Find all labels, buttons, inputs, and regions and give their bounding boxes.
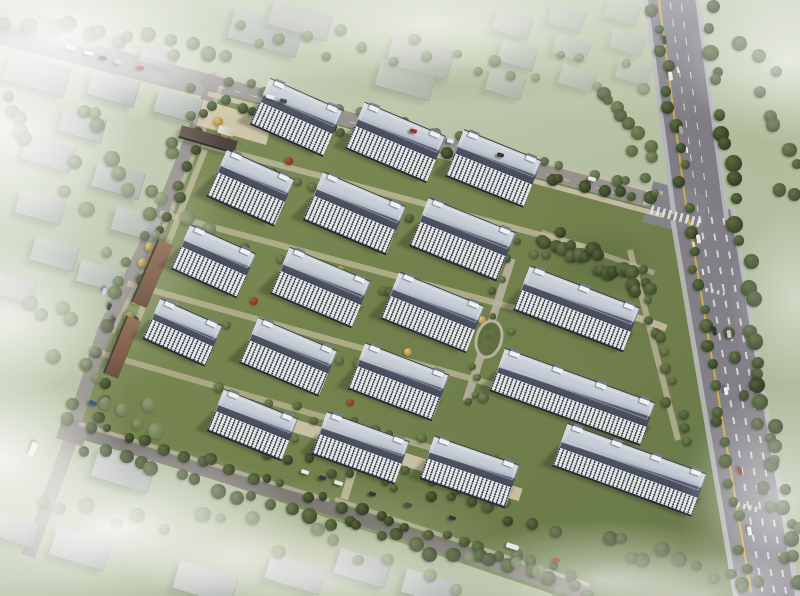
tree-icon	[120, 450, 133, 463]
tree-icon	[356, 503, 368, 515]
tree-icon	[704, 23, 715, 34]
tree-icon	[709, 573, 720, 584]
tree-icon	[325, 519, 337, 531]
tree-icon	[644, 316, 653, 325]
tree-icon	[446, 548, 460, 562]
tree-icon	[54, 503, 66, 515]
tree-icon	[680, 423, 690, 433]
tree-icon	[222, 321, 230, 329]
context-building	[558, 63, 598, 93]
tree-icon	[199, 109, 208, 118]
tree-icon	[173, 181, 183, 191]
tree-icon	[693, 279, 705, 291]
tree-icon	[384, 516, 394, 526]
vehicle	[711, 326, 716, 336]
tree-icon	[90, 118, 105, 133]
tree-icon	[247, 79, 256, 88]
tree-icon	[786, 550, 799, 563]
tree-icon	[753, 576, 764, 587]
tree-icon	[714, 109, 725, 120]
tree-icon	[165, 34, 177, 46]
context-building	[29, 236, 79, 272]
tree-icon	[159, 524, 170, 535]
tree-icon	[61, 16, 77, 32]
tree-icon	[68, 155, 82, 169]
tree-icon	[336, 357, 343, 364]
tree-icon	[336, 502, 348, 514]
tree-icon	[627, 192, 636, 201]
tree-icon	[80, 358, 92, 370]
tree-icon	[661, 348, 669, 356]
tree-icon	[768, 419, 783, 434]
tree-icon	[554, 174, 563, 183]
tree-icon	[459, 537, 470, 548]
tree-icon	[768, 439, 782, 453]
tree-icon	[143, 461, 159, 477]
tree-icon	[151, 230, 161, 240]
tree-icon	[335, 24, 348, 37]
tree-icon	[189, 473, 201, 485]
tree-icon	[752, 49, 766, 63]
tree-icon	[635, 553, 650, 568]
tree-icon	[422, 547, 437, 562]
tree-icon	[187, 37, 200, 50]
vehicle	[667, 71, 672, 80]
context-building	[333, 548, 392, 589]
tree-icon	[79, 202, 94, 217]
tree-icon	[508, 328, 515, 335]
tree-icon	[719, 454, 733, 468]
tree-icon	[148, 423, 164, 439]
tree-icon	[158, 444, 170, 456]
tree-icon	[283, 455, 293, 465]
tree-icon	[766, 117, 781, 132]
tree-icon	[102, 247, 113, 258]
tree-icon	[182, 161, 193, 172]
tree-icon	[319, 492, 328, 501]
vehicle	[28, 441, 38, 456]
tree-icon	[322, 52, 331, 61]
tree-icon	[178, 451, 190, 463]
tree-icon	[423, 530, 433, 540]
tree-icon	[404, 348, 412, 356]
tree-icon	[599, 185, 611, 197]
tree-icon	[426, 491, 437, 502]
tree-icon	[744, 254, 759, 269]
tree-icon	[451, 584, 462, 595]
tree-icon	[122, 183, 135, 196]
tree-icon	[205, 453, 217, 465]
tree-icon	[417, 433, 427, 443]
tree-icon	[592, 249, 604, 261]
tree-icon	[773, 183, 787, 197]
tree-icon	[246, 511, 260, 525]
tree-icon	[168, 49, 180, 61]
tree-icon	[644, 283, 656, 295]
tree-icon	[530, 250, 539, 259]
tree-icon	[539, 237, 551, 249]
tree-icon	[532, 564, 547, 579]
tree-icon	[726, 216, 743, 233]
tree-icon	[726, 569, 736, 579]
tree-icon	[542, 251, 550, 259]
tree-icon	[782, 143, 796, 157]
tree-icon	[273, 33, 285, 45]
tree-icon	[511, 557, 522, 568]
tree-icon	[654, 45, 666, 57]
tree-icon	[725, 155, 742, 172]
tree-icon	[655, 25, 664, 34]
tree-icon	[570, 580, 581, 591]
tree-icon	[465, 398, 471, 404]
tree-icon	[622, 59, 631, 68]
tree-icon	[555, 227, 566, 238]
tree-icon	[302, 31, 313, 42]
context-building	[552, 33, 592, 63]
tree-icon	[532, 73, 541, 82]
tree-icon	[180, 210, 195, 225]
vehicle	[746, 526, 752, 536]
tree-icon	[626, 145, 638, 157]
tree-icon	[631, 285, 639, 293]
tree-icon	[731, 193, 742, 204]
tree-icon	[377, 531, 388, 542]
context-building	[496, 39, 538, 72]
tree-icon	[720, 437, 730, 447]
tree-icon	[746, 291, 762, 307]
tree-icon	[788, 188, 800, 201]
tree-icon	[739, 390, 749, 400]
context-building	[609, 28, 647, 58]
tree-icon	[489, 55, 501, 67]
tree-icon	[663, 60, 675, 72]
tree-icon	[557, 51, 566, 60]
tree-icon	[638, 83, 650, 95]
tree-icon	[37, 496, 49, 508]
tree-icon	[422, 51, 432, 61]
context-building	[547, 3, 587, 33]
tree-icon	[729, 351, 742, 364]
tree-icon	[640, 173, 651, 184]
tree-icon	[66, 398, 79, 411]
tree-icon	[776, 500, 790, 514]
tree-icon	[214, 117, 223, 126]
tree-icon	[186, 111, 196, 121]
tree-icon	[46, 349, 61, 364]
tree-icon	[174, 192, 186, 204]
tree-icon	[751, 368, 763, 380]
context-building	[491, 8, 533, 41]
tree-icon	[454, 50, 462, 58]
tree-icon	[769, 455, 779, 465]
tree-icon	[757, 481, 771, 495]
tree-icon	[211, 484, 226, 499]
tree-icon	[792, 159, 800, 169]
tree-icon	[122, 31, 133, 42]
tree-icon	[250, 297, 258, 305]
tree-icon	[555, 161, 564, 170]
tree-icon	[129, 508, 145, 524]
tree-icon	[625, 265, 638, 278]
tree-icon	[35, 308, 48, 321]
tree-icon	[89, 346, 100, 357]
tree-icon	[353, 555, 363, 565]
tree-icon	[443, 531, 452, 540]
tree-icon	[139, 435, 151, 447]
tree-icon	[285, 157, 293, 165]
tree-icon	[718, 137, 731, 150]
vehicle	[695, 234, 700, 244]
tree-icon	[177, 469, 189, 481]
tree-icon	[734, 235, 745, 246]
tree-icon	[79, 446, 89, 456]
tree-icon	[112, 166, 127, 181]
tree-icon	[631, 126, 645, 140]
tree-icon	[220, 50, 232, 62]
tree-icon	[328, 534, 339, 545]
tree-icon	[737, 583, 748, 594]
tree-icon	[143, 207, 157, 221]
tree-icon	[23, 296, 38, 311]
tree-icon	[79, 497, 95, 513]
tree-icon	[683, 437, 692, 446]
tree-icon	[302, 508, 318, 524]
tree-icon	[142, 398, 155, 411]
tree-icon	[409, 34, 421, 46]
tree-icon	[661, 86, 671, 96]
tree-icon	[780, 484, 791, 495]
tree-icon	[707, 0, 720, 13]
vehicle	[679, 126, 684, 134]
tree-icon	[223, 464, 234, 475]
tree-icon	[162, 212, 172, 222]
tree-icon	[230, 491, 245, 506]
tree-icon	[141, 27, 156, 42]
tree-icon	[311, 523, 324, 536]
tree-icon	[390, 528, 403, 541]
tree-icon	[482, 553, 495, 566]
tree-icon	[116, 403, 128, 415]
tree-icon	[382, 554, 394, 566]
tree-icon	[111, 518, 122, 529]
tree-icon	[660, 363, 670, 373]
tree-icon	[263, 474, 271, 482]
tree-icon	[503, 516, 512, 525]
tree-icon	[672, 552, 687, 567]
tree-icon	[747, 333, 763, 349]
tree-icon	[615, 186, 626, 197]
tree-icon	[357, 42, 368, 53]
tree-icon	[0, 17, 11, 30]
tree-icon	[754, 86, 766, 98]
tree-icon	[64, 312, 78, 326]
tree-icon	[771, 66, 782, 77]
tree-icon	[292, 435, 300, 443]
tree-icon	[702, 45, 719, 62]
tree-icon	[727, 171, 742, 186]
tree-icon	[58, 185, 70, 197]
tree-icon	[424, 569, 437, 582]
context-building	[604, 0, 642, 27]
vehicle	[661, 35, 666, 44]
tree-icon	[140, 231, 150, 241]
tree-icon	[246, 491, 256, 501]
tree-icon	[646, 151, 658, 163]
tree-icon	[294, 178, 301, 185]
tree-icon	[550, 526, 562, 538]
tree-icon	[347, 399, 354, 406]
tree-icon	[651, 189, 659, 197]
tree-icon	[108, 286, 121, 299]
context-building	[264, 553, 326, 595]
tree-icon	[121, 257, 131, 267]
tree-icon	[553, 586, 566, 596]
tree-icon	[765, 501, 777, 513]
tree-icon	[729, 497, 738, 506]
tree-icon	[265, 499, 276, 510]
tree-icon	[22, 18, 37, 33]
tree-icon	[723, 479, 733, 489]
tree-icon	[710, 74, 721, 85]
tree-icon	[676, 143, 686, 153]
tree-icon	[276, 479, 284, 487]
tree-icon	[104, 151, 120, 167]
tree-icon	[616, 533, 627, 544]
tree-icon	[711, 416, 722, 427]
tree-icon	[4, 91, 14, 101]
tree-icon	[201, 46, 217, 62]
context-building	[49, 525, 113, 571]
tree-icon	[474, 67, 483, 76]
tree-icon	[711, 380, 721, 390]
tree-icon	[293, 402, 302, 411]
tree-icon	[286, 503, 299, 516]
tree-icon	[17, 131, 32, 146]
tree-icon	[791, 575, 800, 590]
tree-icon	[389, 57, 399, 67]
tree-icon	[86, 422, 98, 434]
tree-icon	[155, 192, 168, 205]
tree-icon	[216, 513, 226, 523]
aerial-site-render	[0, 0, 800, 596]
tree-icon	[690, 247, 699, 256]
tree-icon	[701, 340, 713, 352]
tree-icon	[732, 36, 747, 51]
context-building	[172, 561, 239, 596]
tree-icon	[195, 507, 211, 523]
tree-icon	[751, 418, 763, 430]
tree-icon	[644, 296, 652, 304]
